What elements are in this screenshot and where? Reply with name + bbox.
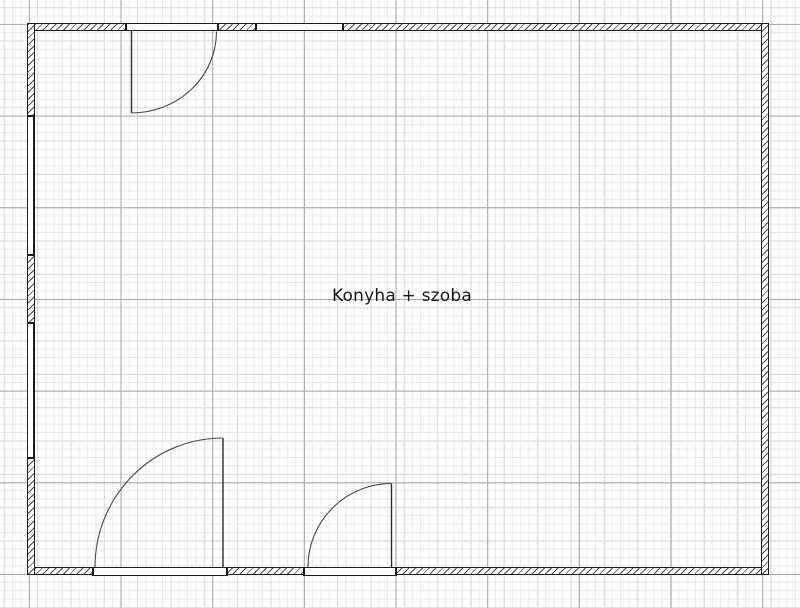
door-swing-top[interactable]	[132, 31, 217, 113]
floorplan-canvas[interactable]: Konyha + szoba	[0, 0, 800, 608]
door-swing-bottom-right[interactable]	[308, 484, 392, 568]
door-swing-bottom-left-arc	[95, 438, 223, 567]
door-swing-top-arc	[132, 32, 217, 114]
room-label[interactable]: Konyha + szoba	[332, 286, 472, 306]
door-swing-bottom-right-arc	[308, 484, 392, 568]
door-swing-bottom-left[interactable]	[95, 438, 223, 567]
